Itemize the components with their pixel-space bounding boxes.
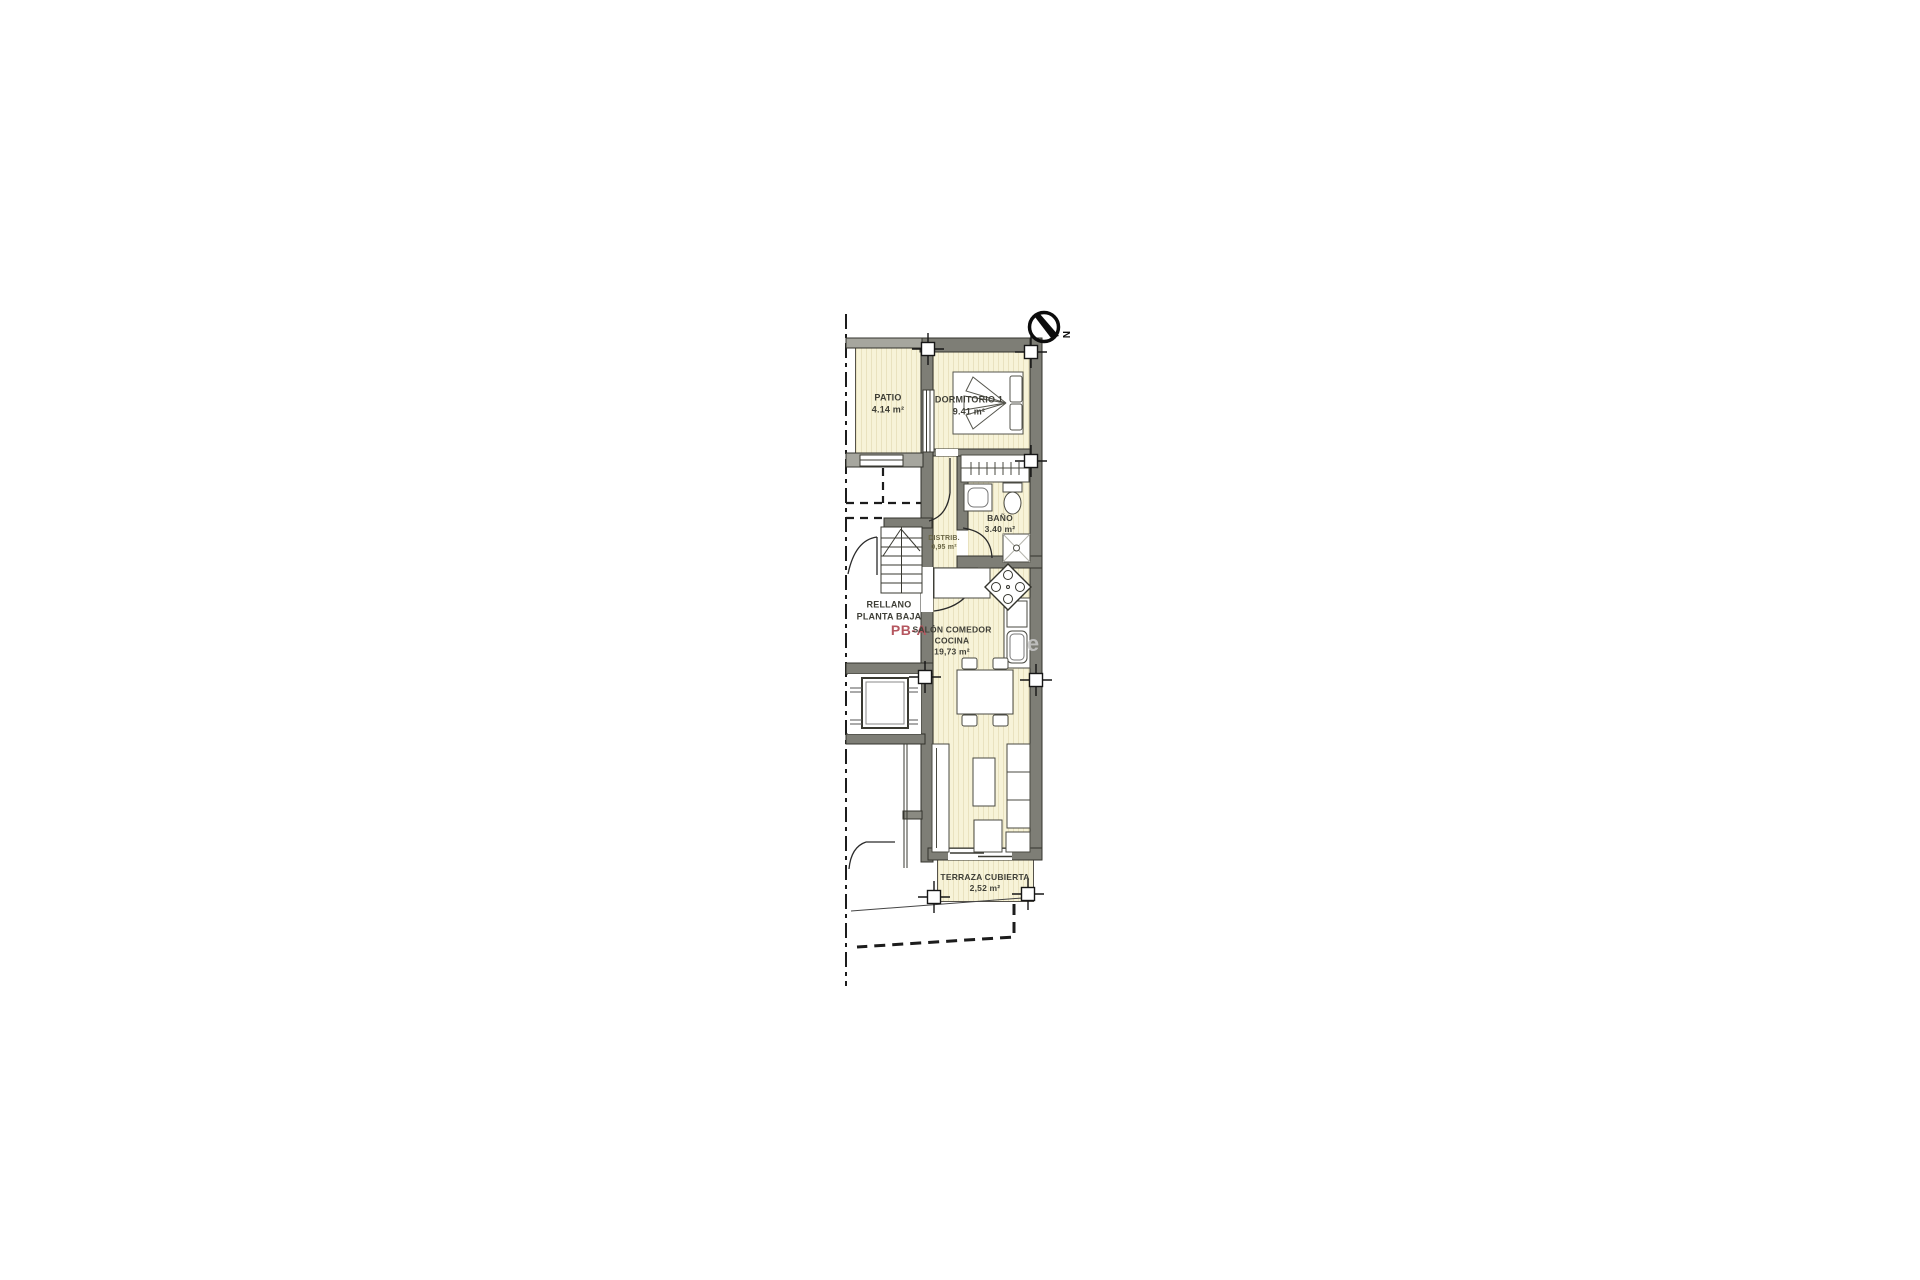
room-label-salon: SALÓN COMEDOR COCINA 19,73 m² — [912, 624, 991, 657]
toilet-icon — [1003, 483, 1022, 514]
patio-window — [923, 390, 934, 452]
dining-table-icon — [957, 658, 1013, 726]
room-label-patio: PATIO 4.14 m² — [872, 392, 904, 415]
floor-plan: N PATIO 4.14 m² DORMITORIO 1 9.41 m² BAÑ… — [0, 0, 1920, 1280]
wardrobe-icon — [961, 455, 1029, 482]
neighbor-door — [849, 842, 895, 869]
entrance-door — [848, 537, 877, 575]
watermark-text: e — [1027, 631, 1039, 657]
room-label-terraza: TERRAZA CUBIERTA 2,52 m² — [940, 872, 1029, 894]
elevator-icon — [848, 674, 921, 734]
room-label-bano: BAÑO 3.40 m² — [985, 513, 1016, 535]
washbasin-icon — [964, 484, 992, 511]
north-compass-icon: N — [1030, 313, 1072, 342]
compass-north-letter: N — [1060, 331, 1071, 338]
coffee-table-icon — [973, 758, 995, 806]
shower-icon — [1003, 534, 1030, 562]
sideboard-icon — [932, 744, 949, 852]
room-label-rellano: RELLANO PLANTA BAJA — [857, 599, 922, 622]
room-label-dormitorio: DORMITORIO 1 9.41 m² — [935, 394, 1003, 417]
stairs-icon — [881, 527, 922, 593]
room-label-distribuidor: DISTRIB. 0,95 m² — [928, 534, 960, 552]
